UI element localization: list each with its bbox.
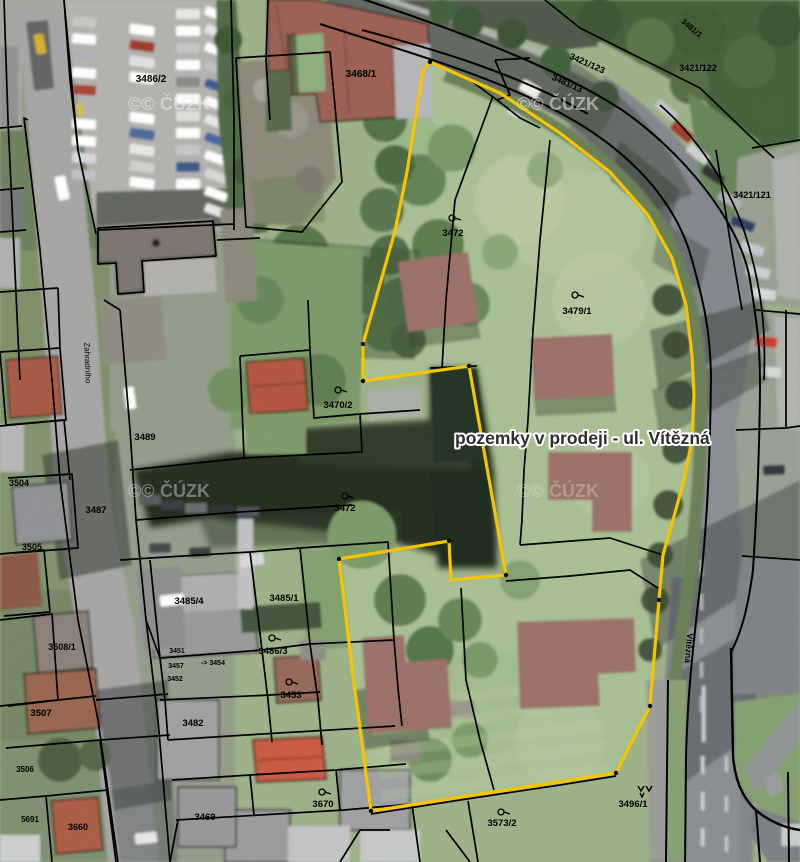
svg-text:3496/1: 3496/1 xyxy=(618,799,648,810)
svg-text:©©: ©© xyxy=(517,94,544,114)
svg-text:3506: 3506 xyxy=(16,765,34,774)
svg-text:3508/1: 3508/1 xyxy=(48,642,76,652)
svg-text:3573/2: 3573/2 xyxy=(487,818,516,829)
svg-text:ČÚZK: ČÚZK xyxy=(549,480,599,501)
svg-text:©©: ©© xyxy=(128,481,155,501)
svg-text:3421/121: 3421/121 xyxy=(733,190,771,200)
svg-text:3452: 3452 xyxy=(167,676,183,683)
svg-text:3660: 3660 xyxy=(68,822,88,832)
svg-text:3472: 3472 xyxy=(334,503,355,514)
svg-text:3468/1: 3468/1 xyxy=(346,69,377,80)
svg-text:ČÚZK: ČÚZK xyxy=(549,93,599,114)
svg-text:3505: 3505 xyxy=(22,542,42,552)
svg-text:3421/122: 3421/122 xyxy=(679,63,717,73)
svg-text:pozemky v prodeji - ul. Vítězn: pozemky v prodeji - ul. Vítězná xyxy=(455,428,710,448)
svg-text:3472: 3472 xyxy=(442,228,463,239)
svg-text:3482: 3482 xyxy=(182,718,203,729)
svg-text:3451: 3451 xyxy=(169,648,185,655)
svg-text:3469: 3469 xyxy=(194,812,215,823)
svg-text:©©: ©© xyxy=(517,481,544,501)
svg-text:3486/3: 3486/3 xyxy=(258,646,287,657)
svg-text:3457: 3457 xyxy=(168,663,184,670)
svg-text:Zahradního: Zahradního xyxy=(82,342,92,384)
svg-text:3453: 3453 xyxy=(280,690,301,701)
svg-text:-˃ 3454: -˃ 3454 xyxy=(201,660,225,667)
svg-text:5691: 5691 xyxy=(21,815,39,824)
svg-text:3485/4: 3485/4 xyxy=(174,596,204,607)
svg-text:ČÚZK: ČÚZK xyxy=(160,480,210,501)
svg-text:3487: 3487 xyxy=(85,505,106,516)
svg-text:3504: 3504 xyxy=(9,478,29,488)
svg-text:3486/2: 3486/2 xyxy=(136,74,167,85)
svg-text:ČÚZK: ČÚZK xyxy=(160,93,210,114)
svg-text:3670: 3670 xyxy=(312,799,333,810)
svg-text:3470/2: 3470/2 xyxy=(323,400,352,411)
svg-text:3485/1: 3485/1 xyxy=(269,593,299,604)
svg-text:3479/1: 3479/1 xyxy=(562,306,592,317)
svg-text:3489: 3489 xyxy=(134,432,155,443)
svg-text:©©: ©© xyxy=(128,94,155,114)
svg-text:3507: 3507 xyxy=(30,708,51,719)
